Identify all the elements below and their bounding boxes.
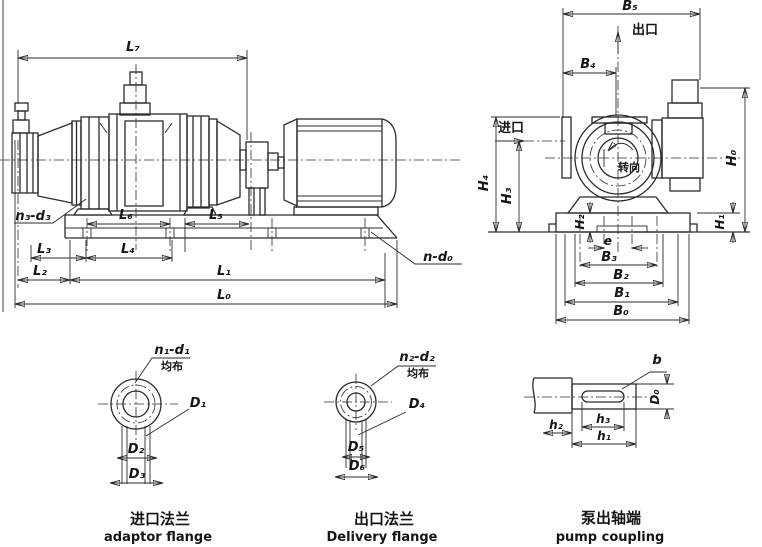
dim-label-B0: B₀ xyxy=(613,304,629,319)
end-view-dimensions-bottom: e B₃ B₂ B₁ B₀ xyxy=(556,234,689,324)
inlet-flange-detail: n₁-d₁ 均布 D₁ D₂ D₃ 进口法兰 adaptor flange xyxy=(98,343,212,545)
dim-label-B2: B₂ xyxy=(613,268,629,283)
relief-valve xyxy=(120,72,150,115)
outlet-label: 出口 xyxy=(632,22,658,38)
hole-label-n3-d3: n₃-d₃ xyxy=(15,209,51,224)
dim-label-H3: H₃ xyxy=(500,187,515,204)
rotation-arrow xyxy=(608,143,633,151)
end-view: 转向 出口 进口 B₅ xyxy=(477,0,750,324)
hole-label-n2-d2: n₂-d₂ xyxy=(399,350,435,365)
dim-label-H0: H₀ xyxy=(725,149,740,166)
dim-label-h2: h₂ xyxy=(549,418,564,432)
dim-label-h1: h₁ xyxy=(597,429,611,443)
dim-label-h3: h₃ xyxy=(596,412,611,426)
motor xyxy=(284,119,396,215)
inlet-valve xyxy=(13,103,29,133)
inlet-flange-caption-en: adaptor flange xyxy=(104,530,212,545)
dim-label-H1: H₁ xyxy=(713,214,727,229)
outlet-flange-caption-zh: 出口法兰 xyxy=(354,510,414,528)
dim-label-D6: D₆ xyxy=(349,459,366,474)
dim-label-L1: L₁ xyxy=(217,264,231,279)
dim-label-L5: L₅ xyxy=(209,208,223,223)
dim-label-D1: D₁ xyxy=(190,396,207,411)
dim-label-b: b xyxy=(652,353,661,368)
outlet-flange-detail: n₂-d₂ 均布 D₄ D₅ D₆ 出口法兰 Delivery flange xyxy=(324,350,438,545)
dim-label-D5: D₅ xyxy=(348,440,365,455)
coupling xyxy=(246,142,284,215)
dim-label-B5: B₅ xyxy=(622,0,638,14)
hole-label-n-d0: n-d₀ xyxy=(423,250,453,265)
dim-label-e: e xyxy=(604,234,612,248)
pump-outline-drawing: L₇ L₆ L₅ L₃ L₄ L₂ L₁ L₀ n₃-d₃ xyxy=(0,0,762,547)
pump-casing xyxy=(74,114,216,215)
dim-label-D0: D₀ xyxy=(648,389,662,405)
inlet-flange-caption-zh: 进口法兰 xyxy=(130,510,190,528)
shaft-end-caption-zh: 泵出轴端 xyxy=(581,509,641,527)
dim-label-D4: D₄ xyxy=(409,397,426,412)
dim-label-H2: H₂ xyxy=(573,214,587,230)
inlet-label: 进口 xyxy=(498,121,524,136)
end-view-relief-valve xyxy=(652,80,703,191)
dim-label-B1: B₁ xyxy=(614,286,630,301)
dim-label-L3: L₃ xyxy=(37,242,51,257)
dim-label-D3: D₃ xyxy=(129,467,146,482)
dim-label-L7: L₇ xyxy=(126,40,140,55)
shaft-end-detail: b D₀ h₂ h₃ h₁ 泵出轴端 pump coupling xyxy=(524,353,674,545)
dim-label-L2: L₂ xyxy=(33,264,47,279)
dim-label-B4: B₄ xyxy=(580,57,596,72)
rotation-label: 转向 xyxy=(618,160,640,174)
dim-label-L0: L₀ xyxy=(217,288,231,303)
dim-label-H4: H₄ xyxy=(477,174,492,191)
outlet-flange-caption-en: Delivery flange xyxy=(326,530,437,545)
dim-label-B3: B₃ xyxy=(601,250,617,265)
end-view-base xyxy=(549,197,697,232)
evenly-spaced-label-2: 均布 xyxy=(407,366,429,380)
suction-cone xyxy=(12,117,109,209)
end-view-dimensions-heights: H₀ H₄ H₃ H₂ H₁ xyxy=(477,88,750,243)
baseplate xyxy=(65,215,397,238)
drawing-canvas: L₇ L₆ L₅ L₃ L₄ L₂ L₁ L₀ n₃-d₃ xyxy=(0,0,762,547)
dim-label-D2: D₂ xyxy=(128,442,145,457)
end-view-dimensions-top: B₅ B₄ xyxy=(563,0,700,118)
dim-label-L4: L₄ xyxy=(121,242,135,257)
shaft-end-caption-en: pump coupling xyxy=(556,530,665,545)
dim-label-L6: L₆ xyxy=(119,208,133,223)
side-view: L₇ L₆ L₅ L₃ L₄ L₂ L₁ L₀ n₃-d₃ xyxy=(0,0,462,312)
rear-bearing xyxy=(187,116,246,208)
evenly-spaced-label-1: 均布 xyxy=(161,359,183,373)
hole-label-n1-d1: n₁-d₁ xyxy=(154,343,190,358)
